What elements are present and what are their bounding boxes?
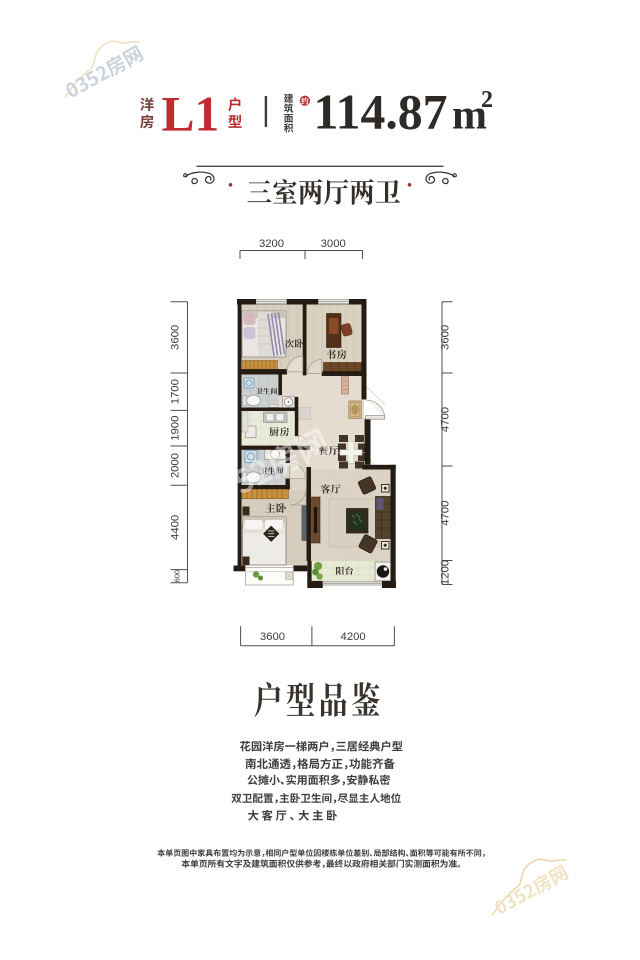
svg-text:2: 2 xyxy=(481,87,493,113)
svg-text:1900: 1900 xyxy=(169,416,181,441)
svg-text:4700: 4700 xyxy=(439,501,451,526)
svg-text:3000: 3000 xyxy=(321,238,346,250)
svg-text:3600: 3600 xyxy=(169,325,181,350)
svg-text:3600: 3600 xyxy=(260,631,285,643)
svg-text:2000: 2000 xyxy=(169,453,181,478)
svg-text:3200: 3200 xyxy=(259,238,284,250)
svg-text:L1: L1 xyxy=(162,87,220,142)
svg-text:4700: 4700 xyxy=(439,407,451,432)
svg-text:4200: 4200 xyxy=(341,631,366,643)
svg-text:1200: 1200 xyxy=(439,560,451,585)
svg-text:3600: 3600 xyxy=(439,325,451,350)
svg-text:1700: 1700 xyxy=(169,379,181,404)
svg-text:4400: 4400 xyxy=(169,515,181,540)
svg-text:600: 600 xyxy=(173,570,182,583)
svg-text:114.87: 114.87 xyxy=(314,85,448,140)
